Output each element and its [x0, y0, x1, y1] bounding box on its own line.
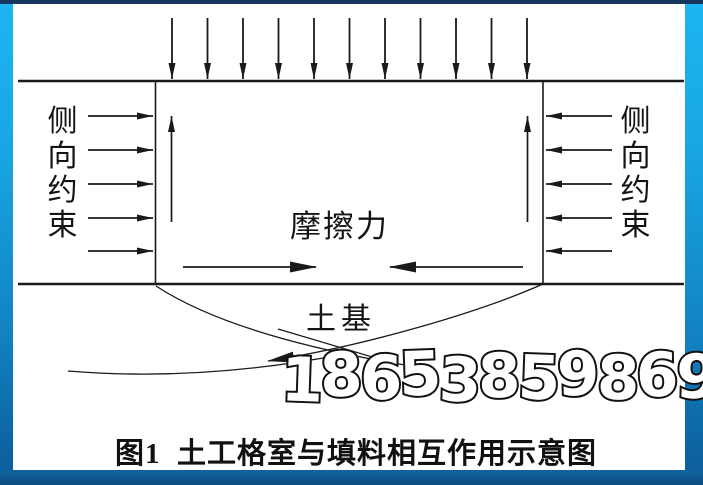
right-constraint-arrows-icon [546, 116, 612, 251]
figure-frame: 侧向约束 侧向约束 摩擦力 土基 18653859869 图1 土工格室与填料相… [0, 0, 703, 485]
geocell-box-edges [156, 81, 544, 284]
subgrade-label: 土基 [306, 294, 376, 338]
left-constraint-arrows-icon [88, 116, 153, 251]
friction-force-label: 摩擦力 [290, 201, 389, 246]
left-constraint-label: 侧向约束 [46, 105, 79, 243]
watermark: 18653859869 [281, 341, 703, 412]
figure-caption: 图1 土工格室与填料相互作用示意图 [115, 430, 597, 472]
top-load-arrows-icon [172, 18, 527, 79]
right-constraint-label: 侧向约束 [619, 105, 652, 243]
ground-lines [18, 81, 684, 284]
